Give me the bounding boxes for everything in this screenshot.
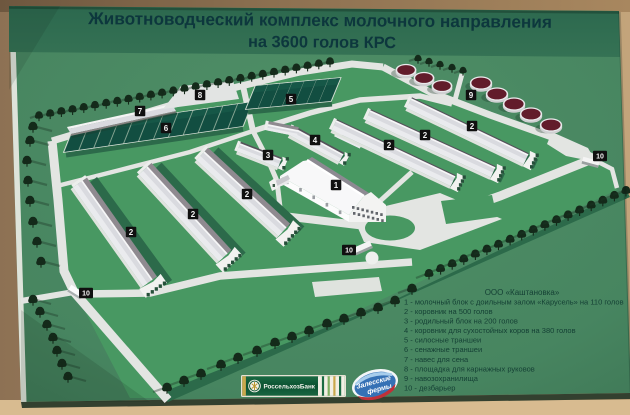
svg-text:2 - коровник на 500 голов: 2 - коровник на 500 голов: [404, 307, 493, 316]
svg-text:10: 10: [345, 248, 353, 255]
svg-text:9: 9: [469, 91, 474, 100]
svg-text:2: 2: [423, 131, 428, 140]
svg-text:5 - силосные траншеи: 5 - силосные траншеи: [404, 336, 481, 345]
svg-text:8 - площадка для карнажных рук: 8 - площадка для карнажных руковов: [404, 364, 535, 373]
svg-text:10 - дезбарьер: 10 - дезбарьер: [404, 383, 455, 392]
svg-text:4 - коровник для сухостойных к: 4 - коровник для сухостойных коров на 38…: [404, 326, 576, 335]
svg-text:5: 5: [289, 95, 294, 104]
svg-text:6 - сенажные траншеи: 6 - сенажные траншеи: [404, 345, 482, 354]
svg-text:3: 3: [266, 151, 271, 160]
svg-text:10: 10: [596, 154, 604, 161]
svg-text:2: 2: [191, 210, 196, 219]
svg-text:на 3600 голов КРС: на 3600 голов КРС: [248, 33, 396, 52]
svg-text:1: 1: [334, 181, 339, 190]
svg-text:7: 7: [138, 107, 143, 116]
svg-text:10: 10: [82, 291, 90, 298]
svg-text:6: 6: [164, 124, 169, 133]
svg-text:РоссельхозБанк: РоссельхозБанк: [264, 383, 316, 390]
svg-text:2: 2: [245, 190, 250, 199]
svg-text:1 - молочный блок с доильным з: 1 - молочный блок с доильным залом «Кару…: [404, 298, 624, 307]
svg-text:ООО «Каштановка»: ООО «Каштановка»: [485, 288, 560, 297]
svg-text:9 - навозохранилища: 9 - навозохранилища: [404, 374, 479, 383]
svg-text:7 - навес для сена: 7 - навес для сена: [404, 355, 469, 364]
svg-text:4: 4: [313, 136, 318, 145]
svg-text:3 - родильный блок на 200 голо: 3 - родильный блок на 200 голов: [404, 317, 518, 326]
svg-text:2: 2: [129, 228, 134, 237]
svg-text:8: 8: [198, 91, 203, 100]
svg-text:2: 2: [470, 122, 475, 131]
svg-text:2: 2: [387, 141, 392, 150]
